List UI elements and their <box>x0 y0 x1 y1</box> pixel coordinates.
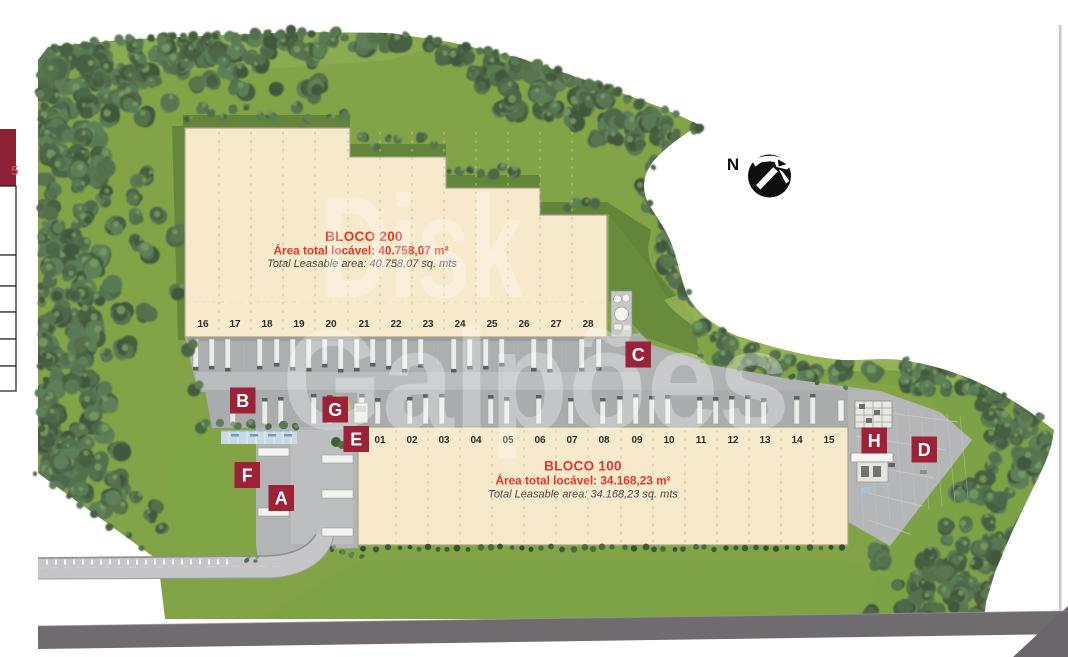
svg-text:14: 14 <box>791 435 803 446</box>
svg-text:16: 16 <box>197 319 209 330</box>
svg-text:A: A <box>275 489 288 509</box>
svg-text:G: G <box>328 400 342 420</box>
svg-text:18: 18 <box>261 319 273 330</box>
svg-text:H: H <box>868 431 881 451</box>
svg-text:D: D <box>918 440 931 460</box>
svg-text:B: B <box>236 391 249 411</box>
svg-text:N: N <box>727 155 739 174</box>
svg-text:F: F <box>242 466 253 486</box>
svg-text:E: E <box>350 430 362 450</box>
svg-text:C: C <box>632 345 645 365</box>
svg-text:Área total locável: 34.168,23: Área total locável: 34.168,23 m² <box>495 474 670 488</box>
svg-text:Total Leasable area: 34.168,23: Total Leasable area: 34.168,23 sq. mts <box>488 489 678 501</box>
svg-text:BLOCO 100: BLOCO 100 <box>544 459 622 474</box>
svg-text:5: 5 <box>11 163 18 178</box>
svg-text:15: 15 <box>823 435 835 446</box>
svg-text:17: 17 <box>229 319 241 330</box>
